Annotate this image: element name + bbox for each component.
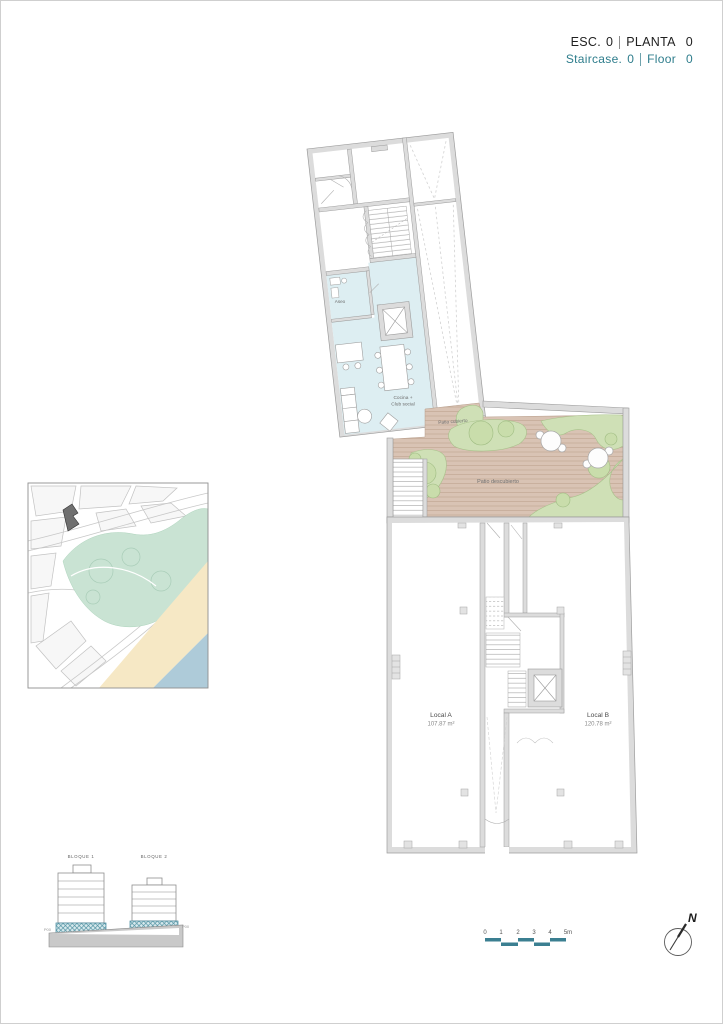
scale-tick-2: 2 (516, 930, 520, 936)
entrance-opening (485, 847, 509, 854)
cocina-label-line2: Club social (391, 402, 414, 408)
scale-tick-3: 3 (532, 930, 536, 936)
lower-elevator-shaft-icon (528, 669, 562, 707)
p00-left-label: P00 (44, 927, 52, 932)
patio-stairs (393, 459, 427, 517)
lower-building (387, 517, 637, 854)
bloque1-label: BLOQUE 1 (68, 854, 95, 859)
scale-bar: 0 1 2 3 4 5m (483, 930, 572, 946)
elevation-towers (58, 865, 176, 923)
scale-tick-5: 5m (564, 930, 572, 936)
patio-descubierto-label: Patio descubierto (477, 479, 519, 485)
floor-plan-canvas: Aseo Cocina + Club social Patio cubierto… (1, 1, 723, 1024)
local-b-label: Local B (587, 712, 610, 719)
local-b-area: 120.78 m² (584, 722, 611, 728)
section-elevation: BLOQUE 1 BLOQUE 2 P00 P00 (44, 854, 190, 947)
p00-right-label: P00 (182, 924, 190, 929)
aseo-label: Aseo (335, 299, 346, 304)
north-label: N (688, 911, 697, 925)
scale-tick-1: 1 (499, 930, 503, 936)
local-a-area: 107.87 m² (427, 722, 454, 728)
scale-bar-ticks: 0 1 2 3 4 5m (483, 930, 572, 936)
scale-tick-4: 4 (548, 930, 552, 936)
elevator-shaft-icon (377, 301, 413, 340)
site-location-map (28, 483, 208, 688)
bloque2-label: BLOQUE 2 (141, 854, 168, 859)
compass-circle (665, 929, 692, 956)
cocina-label-line1: Cocina + (393, 395, 412, 401)
local-a-label: Local A (430, 712, 452, 719)
north-arrow: N (665, 911, 698, 956)
scale-bar-segments (485, 938, 566, 946)
scale-tick-0: 0 (483, 930, 487, 936)
drawing-sheet: ESC. 0 PLANTA 0 Staircase. 0 Floor 0 (0, 0, 723, 1024)
